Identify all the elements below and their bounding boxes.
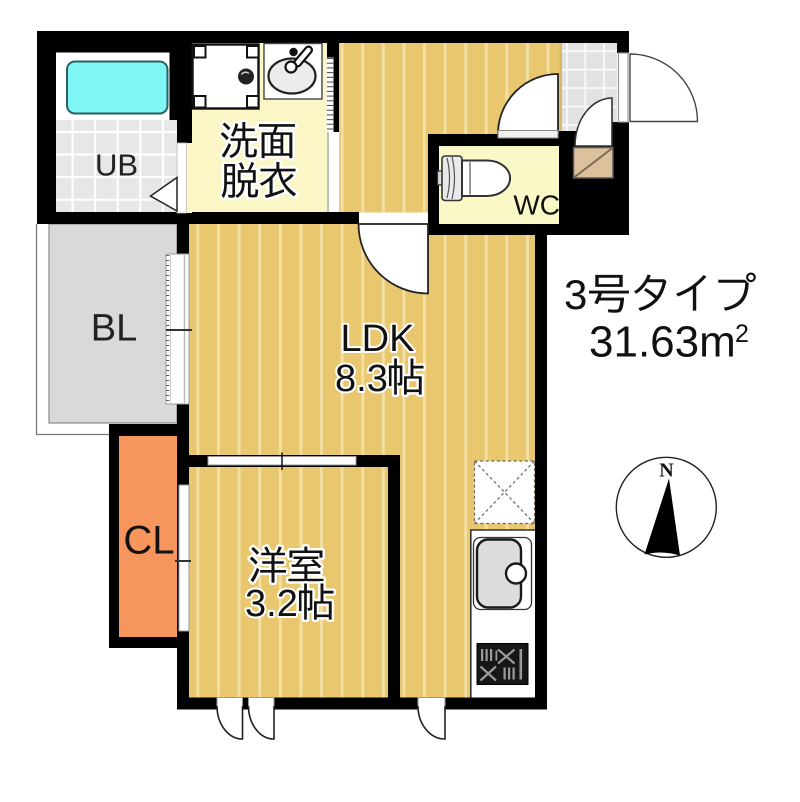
- svg-text:2: 2: [735, 320, 749, 348]
- svg-text:3.2: 3.2: [245, 583, 298, 625]
- svg-text:UB: UB: [95, 148, 138, 183]
- svg-text:8.3: 8.3: [335, 358, 388, 400]
- svg-text:LDK: LDK: [341, 318, 415, 360]
- svg-text:CL: CL: [123, 519, 174, 563]
- svg-text:WC: WC: [513, 190, 560, 221]
- svg-text:BL: BL: [91, 308, 137, 350]
- svg-text:N: N: [659, 460, 674, 482]
- svg-text:3: 3: [564, 271, 587, 318]
- svg-text:31.63m: 31.63m: [589, 318, 736, 367]
